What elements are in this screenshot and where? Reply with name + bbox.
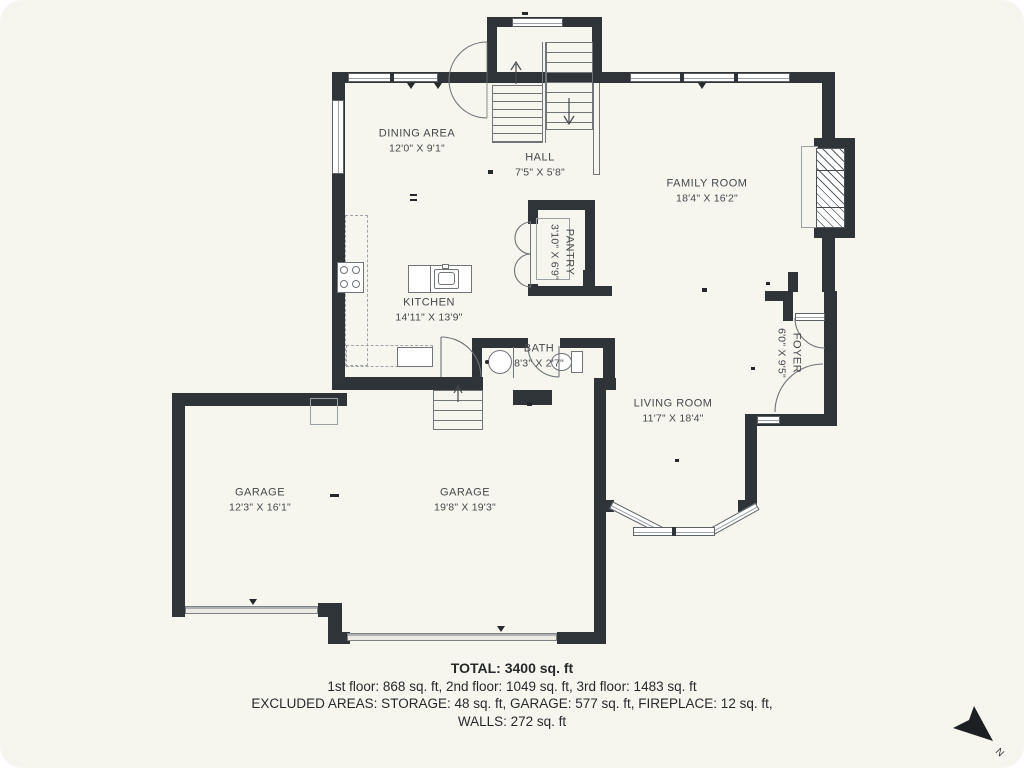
room-name: GARAGE bbox=[434, 486, 496, 501]
room-dims: 12'3" X 16'1" bbox=[229, 500, 291, 515]
kitchen-door-arc bbox=[441, 337, 481, 377]
room-name: BATH bbox=[514, 342, 564, 357]
stair-up-arrow bbox=[511, 62, 521, 84]
room-label-bath: BATH 8'3" X 2'7" bbox=[514, 342, 564, 371]
room-label-family: FAMILY ROOM 18'4" X 16'2" bbox=[667, 177, 748, 206]
area-summary: TOTAL: 3400 sq. ft 1st floor: 868 sq. ft… bbox=[0, 660, 1024, 730]
annotation-layer: N bbox=[0, 0, 1024, 768]
pantry-door-arc bbox=[515, 222, 531, 254]
room-name: HALL bbox=[515, 151, 565, 166]
excluded-areas: EXCLUDED AREAS: STORAGE: 48 sq. ft, GARA… bbox=[0, 695, 1024, 713]
dining-door-arc bbox=[449, 42, 487, 118]
room-label-kitchen: KITCHEN 14'11" X 13'9" bbox=[395, 296, 462, 325]
room-label-pantry: PANTRY 3'10" X 6'9" bbox=[548, 224, 577, 280]
room-name: FAMILY ROOM bbox=[667, 177, 748, 192]
stair-down-arrow bbox=[564, 98, 574, 124]
room-name: DINING AREA bbox=[379, 127, 455, 142]
room-label-living: LIVING ROOM 11'7" X 18'4" bbox=[634, 397, 713, 426]
room-name: LIVING ROOM bbox=[634, 397, 713, 412]
room-name: FOYER bbox=[789, 328, 804, 378]
room-name: KITCHEN bbox=[395, 296, 462, 311]
room-name: PANTRY bbox=[562, 224, 577, 280]
room-dims: 14'11" X 13'9" bbox=[395, 310, 462, 325]
north-label: N bbox=[993, 746, 1006, 759]
walls-area: WALLS: 272 sq. ft bbox=[0, 713, 1024, 731]
room-name: GARAGE bbox=[229, 486, 291, 501]
room-label-garage-right: GARAGE 19'8" X 19'3" bbox=[434, 486, 496, 515]
room-label-garage-left: GARAGE 12'3" X 16'1" bbox=[229, 486, 291, 515]
pantry-door-arc bbox=[515, 254, 532, 287]
floor-areas: 1st floor: 868 sq. ft, 2nd floor: 1049 s… bbox=[0, 678, 1024, 696]
room-label-dining: DINING AREA 12'0" X 9'1" bbox=[379, 127, 455, 156]
room-dims: 11'7" X 18'4" bbox=[634, 411, 713, 426]
floor-plan-canvas: N DINING AREA 12'0" X 9'1" HALL 7'5" X 5… bbox=[0, 0, 1024, 768]
room-dims: 12'0" X 9'1" bbox=[379, 141, 455, 156]
room-dims: 7'5" X 5'8" bbox=[515, 165, 565, 180]
room-dims: 6'0" X 9'5" bbox=[775, 328, 790, 378]
room-dims: 18'4" X 16'2" bbox=[667, 191, 748, 206]
room-dims: 8'3" X 2'7" bbox=[514, 356, 564, 371]
garage-stair-arrow bbox=[454, 386, 462, 402]
room-dims: 19'8" X 19'3" bbox=[434, 500, 496, 515]
total-area: TOTAL: 3400 sq. ft bbox=[0, 660, 1024, 678]
room-label-hall: HALL 7'5" X 5'8" bbox=[515, 151, 565, 180]
room-label-foyer: FOYER 6'0" X 9'5" bbox=[775, 328, 804, 378]
room-dims: 3'10" X 6'9" bbox=[548, 224, 563, 280]
